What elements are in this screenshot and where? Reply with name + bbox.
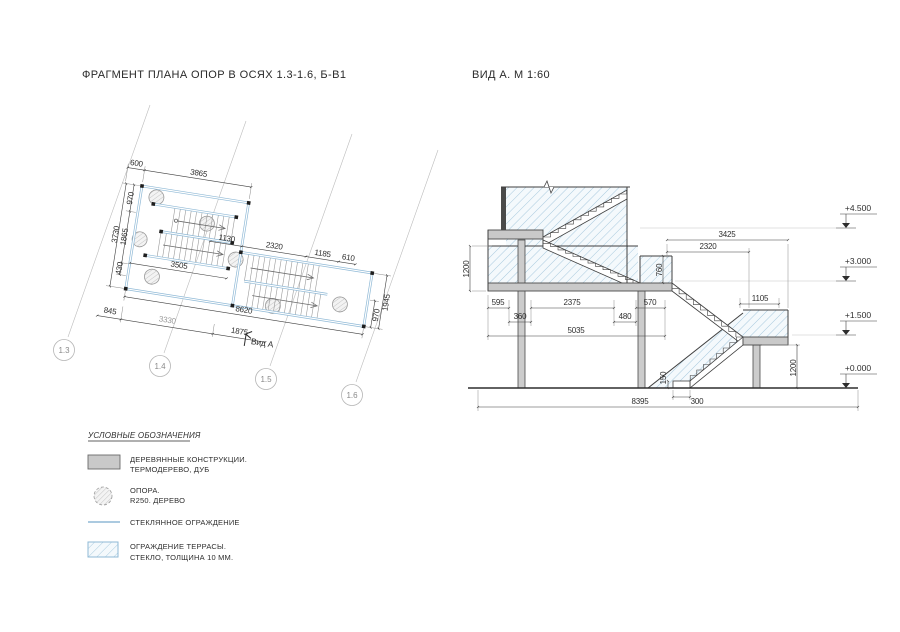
dim-300: 300 [691,397,704,406]
legend-item-support: ОПОРА. R250. ДЕРЕВО [94,486,185,505]
axis-1-3: 1.3 [58,346,70,355]
dim-8395: 8395 [632,397,650,406]
dim-430: 430 [114,261,125,276]
plan-view: 600 3865 3730 970 1865 430 3505 1130 232… [96,157,407,368]
legend-item-glass-railing: СТЕКЛЯННОЕ ОГРАЖДЕНИЕ [88,518,240,527]
dim-360: 360 [514,312,527,321]
dim-1105: 1105 [752,294,769,303]
dim-3425: 3425 [719,230,737,239]
svg-text:+3.000: +3.000 [845,256,872,266]
svg-text:ОПОРА.: ОПОРА. [130,486,160,495]
legend-item-terrace-glass: ОГРАЖДЕНИЕ ТЕРРАСЫ. СТЕКЛО, ТОЛЩИНА 10 М… [88,542,233,562]
dim-2375: 2375 [564,298,582,307]
svg-text:СТЕКЛЯННОЕ ОГРАЖДЕНИЕ: СТЕКЛЯННОЕ ОГРАЖДЕНИЕ [130,518,240,527]
dim-600: 600 [129,158,144,169]
dim-595: 595 [492,298,505,307]
svg-text:СТЕКЛО, ТОЛЩИНА 10 ММ.: СТЕКЛО, ТОЛЩИНА 10 ММ. [130,553,233,562]
dim-1875: 1875 [230,326,249,338]
dim-8620: 8620 [235,304,254,316]
dim-845: 845 [103,306,118,317]
support-circle-symbol [94,487,112,505]
svg-text:+0.000: +0.000 [845,363,872,373]
legend: УСЛОВНЫЕ ОБОЗНАЧЕНИЯ ДЕРЕВЯННЫЕ КОНСТРУК… [87,431,247,562]
elevation-view: 1200 3425 2320 1105 760 595 2375 [462,181,877,411]
dim-2320: 2320 [265,240,284,252]
dim-970-left: 970 [125,191,136,206]
view-arrow-label: Вид А [250,336,274,349]
svg-text:+4.500: +4.500 [845,203,872,213]
plan-axis-bubbles: 1.3 1.4 1.5 1.6 [54,340,363,406]
dim-1185: 1185 [314,248,332,260]
drawing-sheet: ФРАГМЕНТ ПЛАНА ОПОР В ОСЯХ 1.3-1.6, Б-В1… [0,0,900,632]
legend-title: УСЛОВНЫЕ ОБОЗНАЧЕНИЯ [87,431,201,440]
view-title: ВИД А. М 1:60 [472,69,550,81]
level-mark-1500: +1.500 [836,310,877,335]
svg-text:R250. ДЕРЕВО: R250. ДЕРЕВО [130,496,185,505]
wood-fill-swatch [88,455,120,469]
svg-text:ОГРАЖДЕНИЕ ТЕРРАСЫ.: ОГРАЖДЕНИЕ ТЕРРАСЫ. [130,542,226,551]
dim-1865: 1865 [119,227,131,246]
level-mark-3000: +3.000 [836,256,877,281]
bottom-step [673,381,690,388]
dim-1200-right: 1200 [789,359,798,377]
dim-3505: 3505 [170,259,189,271]
dim-1945: 1945 [380,293,392,312]
level-mark-0000: +0.000 [840,363,877,388]
dim-760: 760 [655,263,664,276]
dim-3330: 3330 [158,314,177,326]
axis-1-4: 1.4 [154,362,166,371]
dim-2320-elev: 2320 [700,242,718,251]
level-mark-4500: +4.500 [836,203,877,228]
svg-text:ТЕРМОДЕРЕВО, ДУБ: ТЕРМОДЕРЕВО, ДУБ [130,465,209,474]
plan-title: ФРАГМЕНТ ПЛАНА ОПОР В ОСЯХ 1.3-1.6, Б-В1 [82,69,346,81]
dim-5035: 5035 [568,326,586,335]
dim-480: 480 [619,312,632,321]
svg-text:+1.500: +1.500 [845,310,872,320]
view-direction-arrow: Вид А [244,334,274,350]
dim-1200-left: 1200 [462,260,471,278]
axis-1-6: 1.6 [346,391,358,400]
svg-text:ДЕРЕВЯННЫЕ КОНСТРУКЦИИ.: ДЕРЕВЯННЫЕ КОНСТРУКЦИИ. [130,455,247,464]
drawing-canvas: ФРАГМЕНТ ПЛАНА ОПОР В ОСЯХ 1.3-1.6, Б-В1… [0,0,900,632]
dim-3865: 3865 [190,167,209,179]
legend-item-wood: ДЕРЕВЯННЫЕ КОНСТРУКЦИИ. ТЕРМОДЕРЕВО, ДУБ [88,455,247,474]
dim-150: 150 [659,371,668,384]
level-marks: +4.500 +3.000 +1.500 +0.00 [836,203,877,388]
axis-1-5: 1.5 [260,375,272,384]
terrace-glass-swatch [88,542,118,557]
dim-570: 570 [644,298,657,307]
dim-610: 610 [341,252,356,263]
